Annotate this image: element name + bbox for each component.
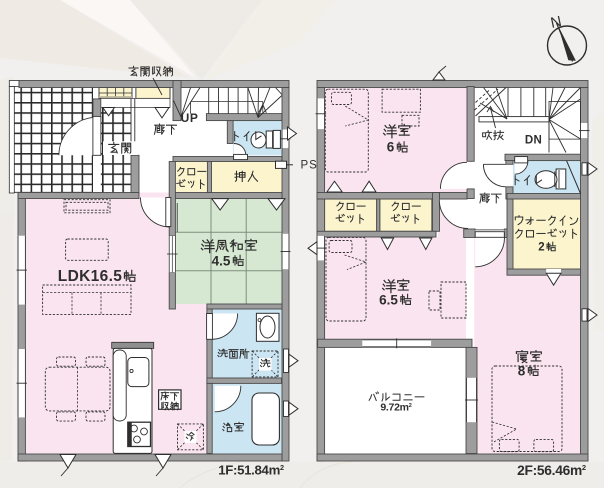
svg-text:DN: DN: [525, 135, 542, 147]
svg-text:UP: UP: [181, 111, 199, 125]
svg-text:9.72m2: 9.72m2: [380, 402, 411, 414]
svg-text:4.5: 4.5: [212, 254, 231, 269]
svg-text:2: 2: [538, 242, 544, 254]
svg-text:6.5: 6.5: [379, 293, 398, 308]
svg-text:1F:51.84m2: 1F:51.84m2: [218, 463, 284, 478]
svg-text:PS: PS: [301, 160, 318, 172]
svg-text:2F:56.46m2: 2F:56.46m2: [517, 463, 586, 478]
svg-text:LDK16.5: LDK16.5: [58, 268, 123, 285]
svg-text:8: 8: [518, 364, 526, 379]
svg-text:6: 6: [387, 140, 395, 155]
